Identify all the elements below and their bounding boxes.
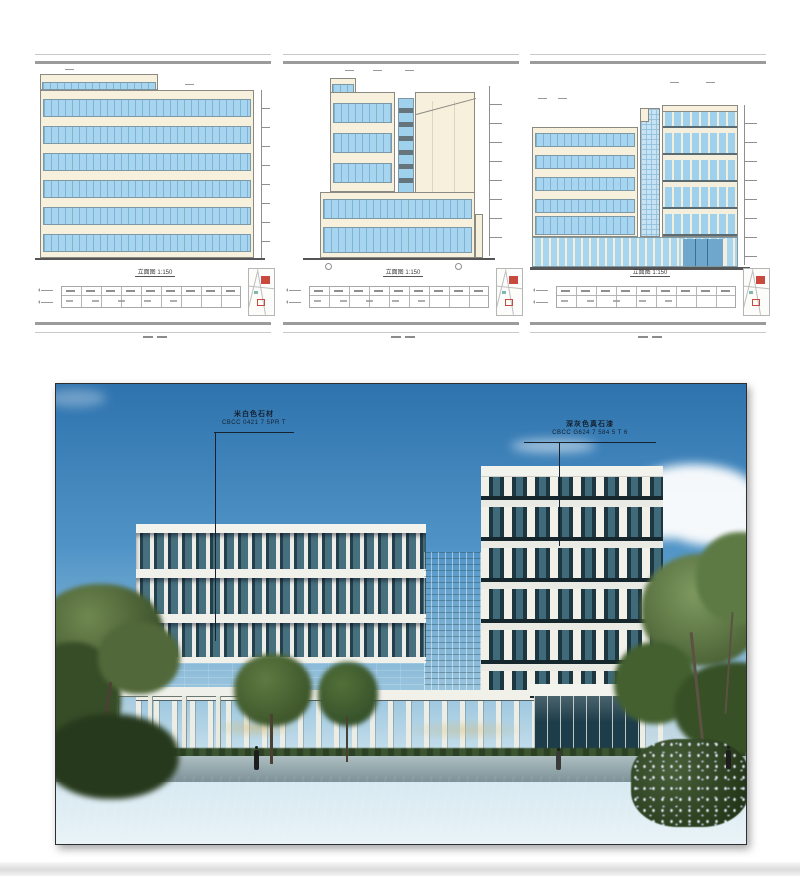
divider [530, 332, 766, 333]
window-band [43, 126, 251, 144]
pergola-column [182, 696, 187, 752]
ground-line [303, 258, 495, 260]
divider [530, 322, 766, 325]
key-plan-block [254, 291, 258, 294]
divider [283, 54, 519, 55]
key-plan-block [749, 291, 753, 294]
annotation-leader-line [214, 432, 294, 433]
key-plan-thumbnail [248, 268, 275, 316]
upper-facade [330, 92, 395, 192]
divider [35, 322, 271, 325]
key-plan-block [505, 299, 513, 306]
dimension-text [185, 84, 194, 85]
window-band [333, 163, 392, 183]
glazed-floor [136, 533, 426, 569]
level-mark [536, 302, 548, 303]
materials-table [309, 286, 489, 308]
window-band [43, 99, 251, 117]
window-band [333, 133, 392, 153]
annotation-leader-line [215, 432, 216, 641]
key-plan-block [502, 291, 506, 294]
level-mark [41, 290, 53, 291]
divider [35, 61, 271, 64]
level-mark [289, 290, 301, 291]
dimension-stack [261, 90, 270, 258]
cloud [55, 389, 106, 407]
window-band [535, 155, 635, 169]
level-mark [41, 302, 53, 303]
drawing-caption: 立面图 1:150 [283, 267, 523, 276]
key-plan-highlight [261, 276, 270, 284]
lowrise-facade [532, 127, 638, 237]
material-code: CBCC G624 7 584 5 T 6 [526, 429, 654, 437]
person-figure [726, 750, 731, 769]
window-band [43, 180, 251, 198]
window-band [43, 153, 251, 171]
divider [283, 332, 519, 333]
level-mark [289, 302, 301, 303]
colonnade [532, 237, 738, 267]
material-label: 深灰色真石漆 [526, 420, 654, 429]
spandrel-band [136, 569, 426, 578]
glazed-floor [136, 578, 426, 614]
divider [35, 332, 271, 333]
glass-atrium [424, 552, 484, 692]
dimension-text [405, 70, 414, 71]
annotation-leader-line [559, 442, 560, 546]
side-step [475, 214, 483, 258]
entrance-doors [681, 239, 725, 266]
window-band [333, 103, 392, 123]
tree-canopy [318, 662, 378, 726]
divider [283, 61, 519, 64]
elevation-drawing-1 [35, 68, 275, 268]
window-band [43, 234, 251, 252]
dimension-text [538, 98, 547, 99]
tower-facade [662, 105, 738, 237]
tower-parapet [662, 105, 738, 112]
drawing-sheet: 立面图 1:150 [0, 0, 800, 889]
pergola-column [216, 696, 221, 752]
key-plan-highlight [756, 276, 765, 284]
divider [283, 322, 519, 325]
annotation-leader-line [524, 442, 656, 443]
sheet-number-text [391, 336, 401, 338]
material-label: 米白色石材 [214, 410, 294, 419]
spandrel-band [136, 614, 426, 623]
building-rendering: 米白色石材 CBCC 0421 7 5PR T 深灰色真石漆 CBCC G624… [55, 383, 747, 845]
person-figure [556, 752, 561, 770]
key-plan-thumbnail [496, 268, 523, 316]
table-row-text [66, 300, 180, 302]
window-band [535, 216, 635, 235]
material-annotation-right: 深灰色真石漆 CBCC G624 7 584 5 T 6 [526, 420, 654, 437]
sheet-number-text [638, 336, 648, 338]
parapet-step [640, 108, 649, 122]
sheet-number-text [143, 336, 153, 338]
window-band [323, 199, 472, 219]
material-code: CBCC 0421 7 5PR T [214, 419, 294, 427]
parapet [481, 466, 663, 477]
divider [35, 54, 271, 55]
drawing-caption: 立面图 1:150 [530, 267, 770, 276]
dimension-text [345, 70, 354, 71]
materials-table [61, 286, 241, 308]
window-band [43, 207, 251, 225]
window-band [535, 133, 635, 147]
shrub-mass [55, 714, 179, 799]
materials-table [556, 286, 736, 308]
table-header-text [314, 290, 484, 292]
tree-trunk [346, 716, 348, 762]
key-plan-block [752, 299, 760, 306]
table-row-text [561, 300, 675, 302]
dimension-text [373, 70, 382, 71]
window-band [535, 177, 635, 191]
tree-trunk [270, 714, 273, 764]
elevation-drawing-2 [283, 68, 523, 268]
key-plan-highlight [509, 276, 518, 284]
key-plan-thumbnail [743, 268, 770, 316]
elevation-drawing-3 [530, 68, 770, 268]
material-annotation-left: 米白色石材 CBCC 0421 7 5PR T [214, 410, 294, 427]
table-header-text [561, 290, 731, 292]
dimension-text [706, 82, 715, 83]
window-band [535, 199, 635, 213]
level-mark [536, 290, 548, 291]
dimension-stack [744, 105, 757, 265]
atrium-glass [640, 108, 660, 237]
elevation-panel-3: 立面图 1:150 [530, 40, 770, 345]
dimension-text [558, 98, 567, 99]
podium [320, 192, 475, 258]
door-mullion [695, 239, 696, 266]
divider [530, 54, 766, 55]
key-plan-block [257, 299, 265, 306]
penthouse [40, 74, 158, 90]
tree-canopy [234, 654, 312, 726]
dimension-text [65, 69, 74, 70]
divider [530, 61, 766, 64]
window-band [42, 82, 156, 90]
page-edge-shadow [0, 862, 800, 876]
ground-line [35, 258, 265, 260]
dimension-text [670, 82, 679, 83]
main-facade [40, 90, 254, 258]
window-band [323, 227, 472, 253]
dimension-stack [489, 86, 502, 256]
person-figure [254, 750, 259, 770]
door-mullion [707, 239, 708, 266]
elevation-panel-2: 立面图 1:150 [283, 40, 523, 345]
drawing-caption: 立面图 1:150 [35, 267, 275, 276]
table-header-text [66, 290, 236, 292]
table-row-text [314, 300, 428, 302]
elevation-panel-1: 立面图 1:150 [35, 40, 275, 345]
